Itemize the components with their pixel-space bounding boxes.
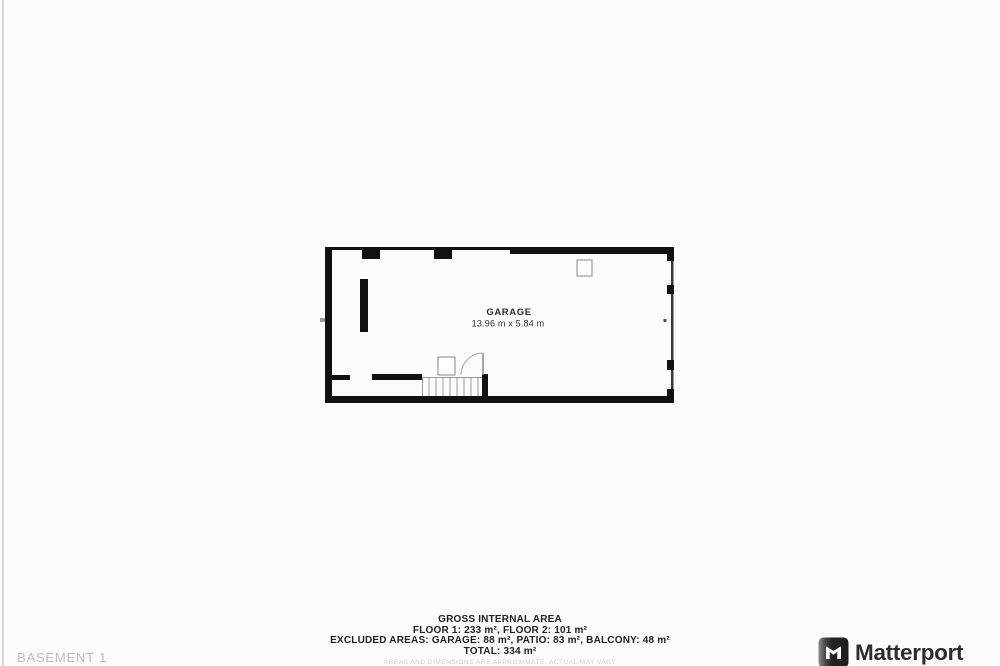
- floorplan-page: GARAGE 13.96 m x 5.84 m GROSS INTERNAL A…: [0, 0, 1000, 666]
- staircase: [423, 378, 483, 397]
- exterior-wall-left: [325, 247, 332, 403]
- right-wall-post-upper: [667, 285, 674, 294]
- exterior-wall-bottom: [325, 396, 674, 403]
- left-edge-shadow: [2, 0, 4, 666]
- room-label: GARAGE: [486, 307, 531, 318]
- wall-stub-left: [362, 250, 380, 259]
- door: [461, 353, 483, 375]
- door-swing-arc: [461, 353, 483, 375]
- matterport-logo-icon: [818, 637, 849, 666]
- exterior-wall-top-thick: [510, 247, 674, 254]
- wall-notch-left: [320, 318, 325, 322]
- right-wall-post-lower: [667, 360, 674, 370]
- floor-label: BASEMENT 1: [17, 649, 107, 666]
- exterior-wall-top-thin: [325, 247, 512, 250]
- interior-wall-column: [360, 279, 368, 332]
- wall-dot-right: [664, 319, 667, 322]
- wall-stub-right: [434, 250, 452, 259]
- right-wall-corner-bottom: [667, 389, 674, 403]
- stair-side-wall: [482, 374, 488, 396]
- duct-box: [577, 260, 592, 276]
- garage-door-track: [671, 250, 674, 396]
- room-dimensions: 13.96 m x 5.84 m: [472, 319, 545, 329]
- matterport-logo: Matterport: [818, 637, 963, 666]
- floor-plan: GARAGE 13.96 m x 5.84 m: [315, 238, 687, 420]
- closet-box: [438, 357, 455, 375]
- right-wall-corner-top: [667, 247, 674, 261]
- interior-wall-a: [332, 375, 350, 380]
- matterport-wordmark: Matterport: [855, 637, 963, 666]
- interior-wall-b: [372, 374, 422, 380]
- summary-title: GROSS INTERNAL AREA: [0, 615, 1000, 626]
